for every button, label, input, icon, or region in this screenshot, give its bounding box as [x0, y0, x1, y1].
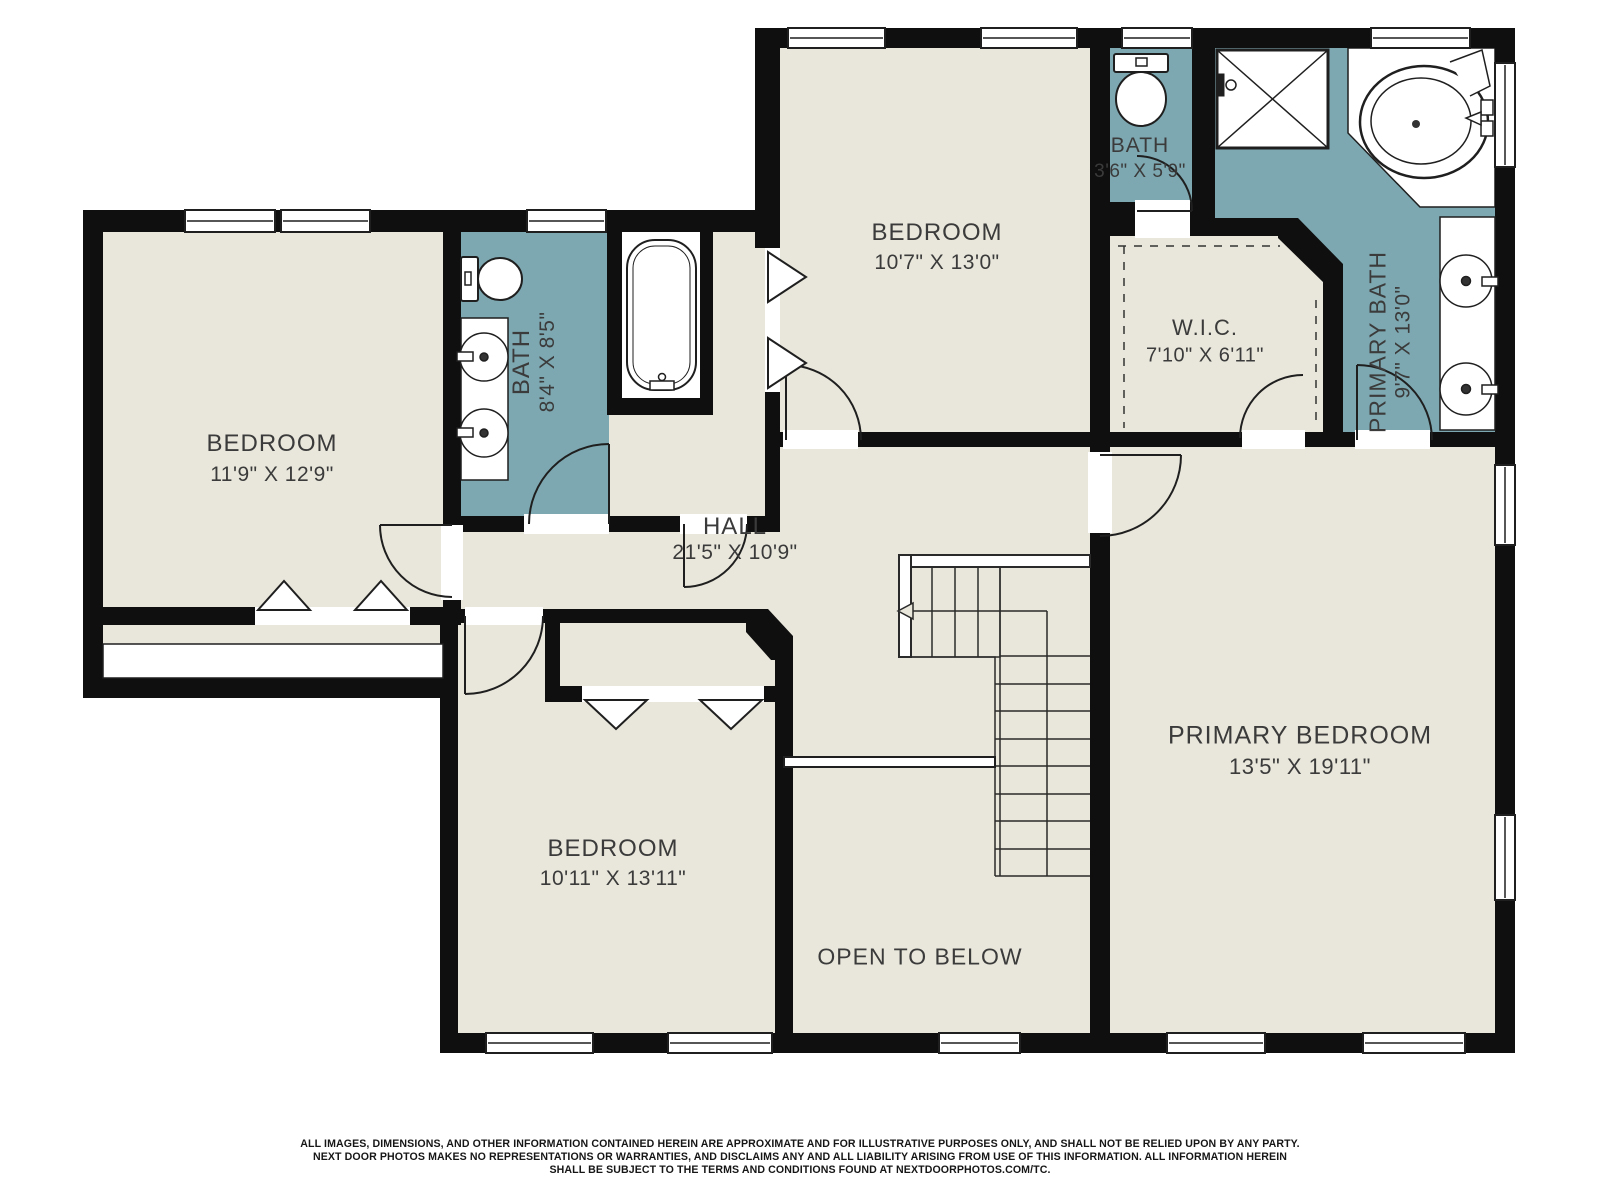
floor-plan-drawing	[0, 0, 1600, 1200]
room-dims-primary-bedroom: 13'5" X 19'11"	[1229, 754, 1371, 780]
disclaimer-line-1: ALL IMAGES, DIMENSIONS, AND OTHER INFORM…	[0, 1138, 1600, 1151]
faucet-icon	[1482, 277, 1498, 286]
room-dims-bedroom-bottom: 10'11" X 13'11"	[540, 867, 686, 891]
room-label-primary-bath-name: PRIMARY BATH	[1365, 251, 1392, 433]
disclaimer: ALL IMAGES, DIMENSIONS, AND OTHER INFORM…	[0, 1138, 1600, 1177]
disclaimer-line-3: SHALL BE SUBJECT TO THE TERMS AND CONDIT…	[0, 1164, 1600, 1177]
room-label-primary-bedroom: PRIMARY BEDROOM	[1168, 722, 1432, 751]
room-dims-bath-small: 3'6" X 5'9"	[1094, 161, 1186, 183]
room-dims-bedroom-left: 11'9" X 12'9"	[210, 463, 334, 487]
faucet-icon	[650, 381, 674, 390]
room-label-bath-left-name: BATH	[508, 312, 536, 413]
vanity	[1440, 217, 1498, 430]
faucet-icon	[1481, 100, 1493, 115]
faucet-icon	[1481, 121, 1493, 136]
room-label-primary-bath: PRIMARY BATH 9'7" X 13'0"	[1365, 251, 1416, 433]
room-dims-wic: 7'10" X 6'11"	[1146, 345, 1264, 368]
left-closet-strip	[103, 644, 443, 678]
room-label-wic: W.I.C.	[1172, 315, 1238, 341]
faucet-icon	[457, 428, 473, 437]
room-label-bedroom-left: BEDROOM	[206, 430, 337, 458]
floor-plan: BEDROOM 11'9" X 12'9" BATH 8'4" X 8'5" B…	[0, 0, 1600, 1200]
bathtub	[627, 240, 696, 390]
room-label-bath-left: BATH 8'4" X 8'5"	[508, 312, 560, 413]
room-label-bath-small: BATH	[1111, 134, 1169, 158]
room-dims-bedroom-top: 10'7" X 13'0"	[874, 251, 999, 275]
room-label-bedroom-bottom: BEDROOM	[547, 835, 678, 863]
vanity	[457, 318, 508, 480]
room-label-hall: HALL	[703, 513, 767, 541]
showerhead-icon	[1217, 74, 1224, 96]
room-dims-primary-bath: 9'7" X 13'0"	[1392, 251, 1416, 433]
room-label-open-to-below: OPEN TO BELOW	[817, 944, 1022, 971]
open-to-below-railing	[784, 757, 995, 767]
toilet	[461, 257, 522, 301]
floor-areas	[103, 48, 1495, 1033]
toilet	[1114, 54, 1168, 126]
faucet-icon	[457, 352, 473, 361]
faucet-icon	[1482, 385, 1498, 394]
stair-railing	[899, 555, 1090, 567]
room-dims-bath-left: 8'4" X 8'5"	[536, 312, 560, 413]
room-dims-hall: 21'5" X 10'9"	[672, 541, 797, 565]
room-label-bedroom-top: BEDROOM	[871, 219, 1002, 247]
disclaimer-line-2: NEXT DOOR PHOTOS MAKES NO REPRESENTATION…	[0, 1151, 1600, 1164]
shower	[1217, 50, 1328, 148]
